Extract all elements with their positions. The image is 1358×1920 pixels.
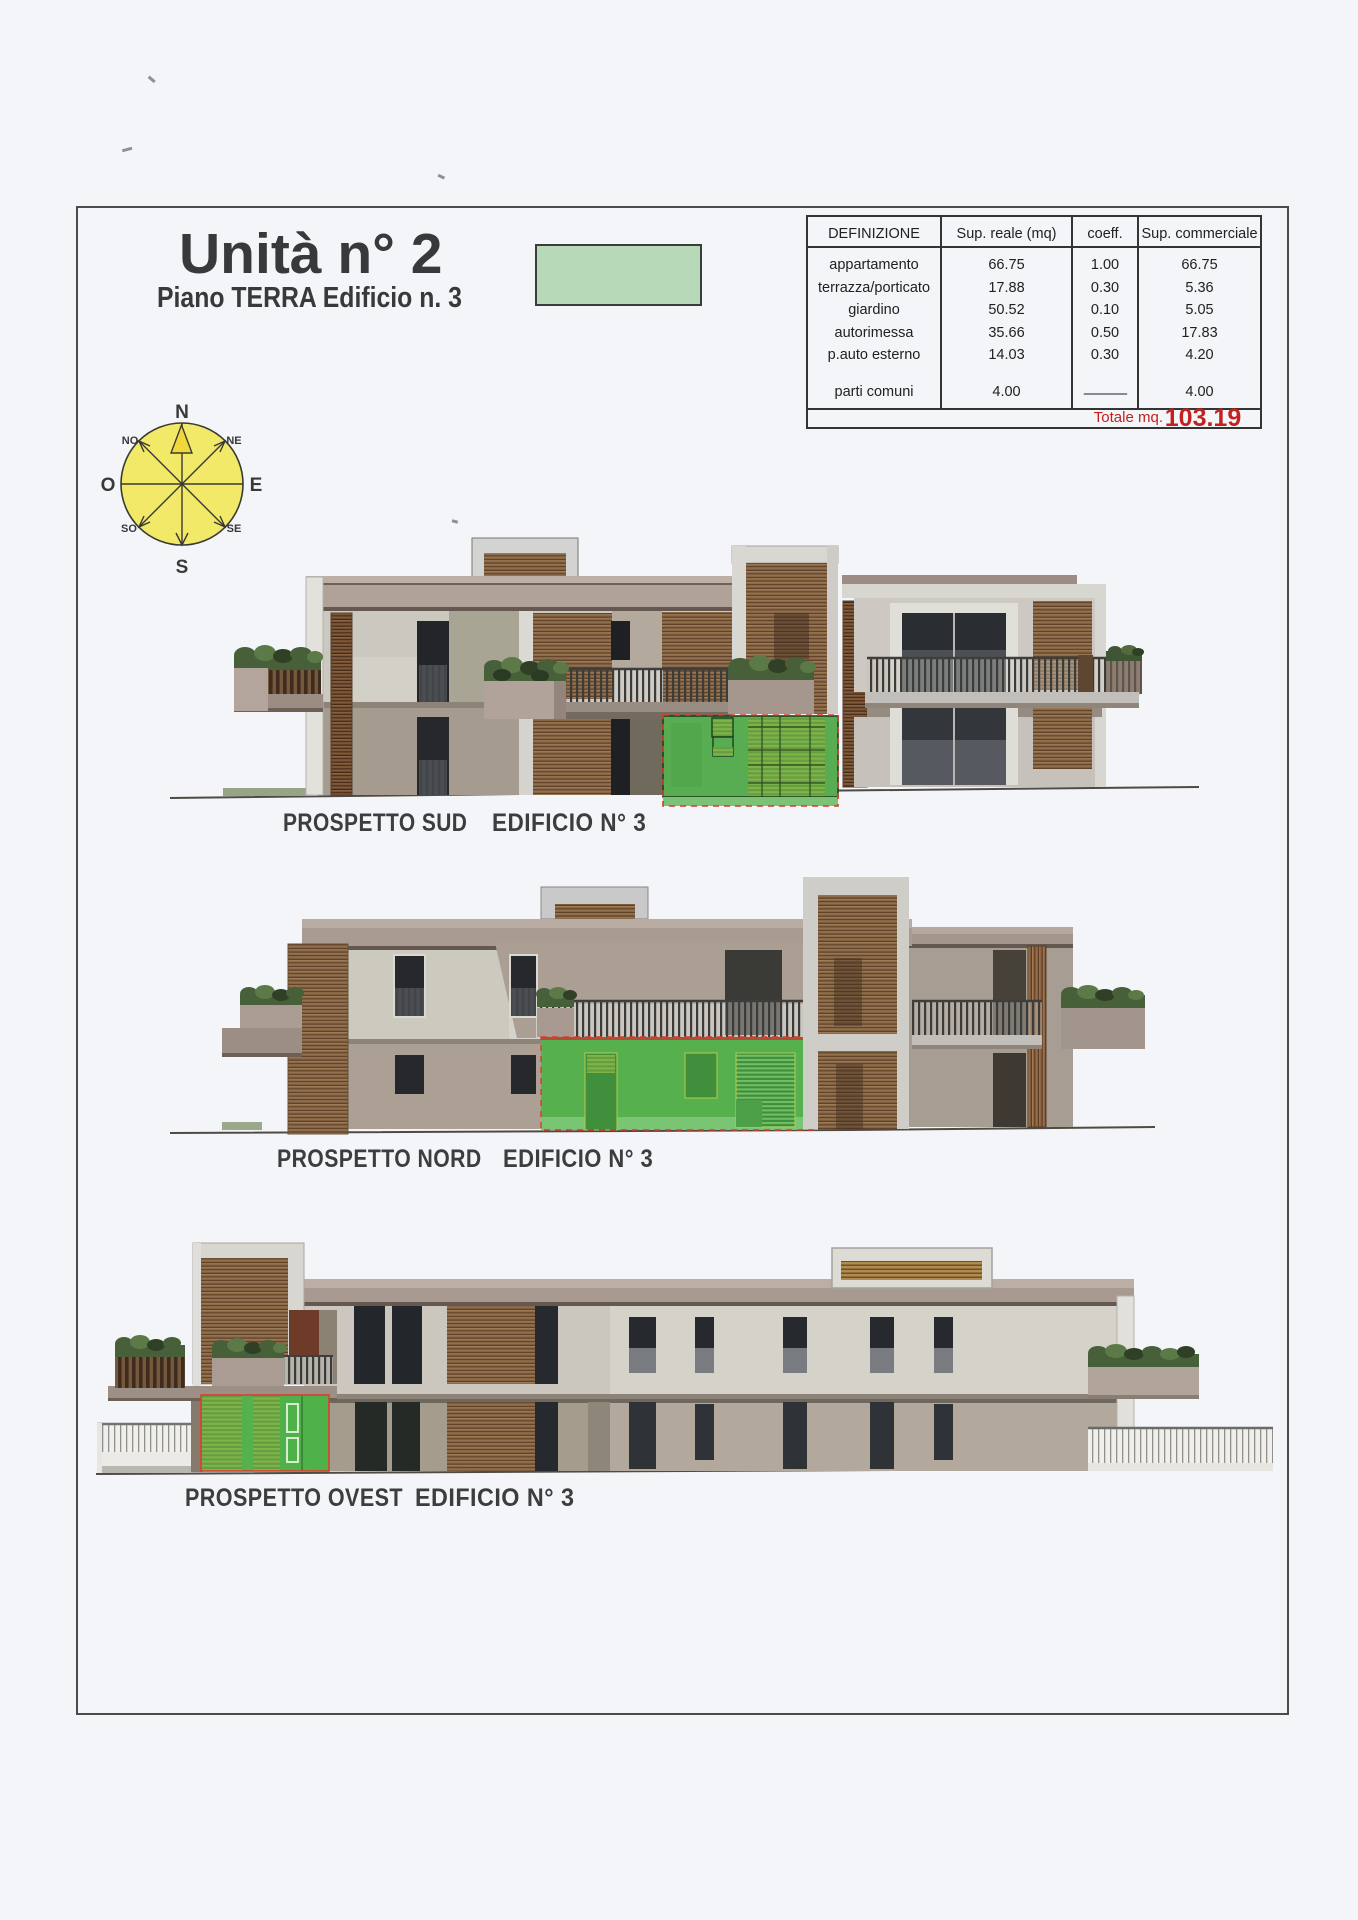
svg-text:SE: SE <box>227 523 242 535</box>
svg-text:NO: NO <box>122 435 139 447</box>
svg-text:N: N <box>175 402 189 423</box>
svg-text:NE: NE <box>226 435 241 447</box>
svg-text:SO: SO <box>121 523 137 535</box>
svg-text:O: O <box>101 475 116 496</box>
svg-text:E: E <box>250 475 263 496</box>
